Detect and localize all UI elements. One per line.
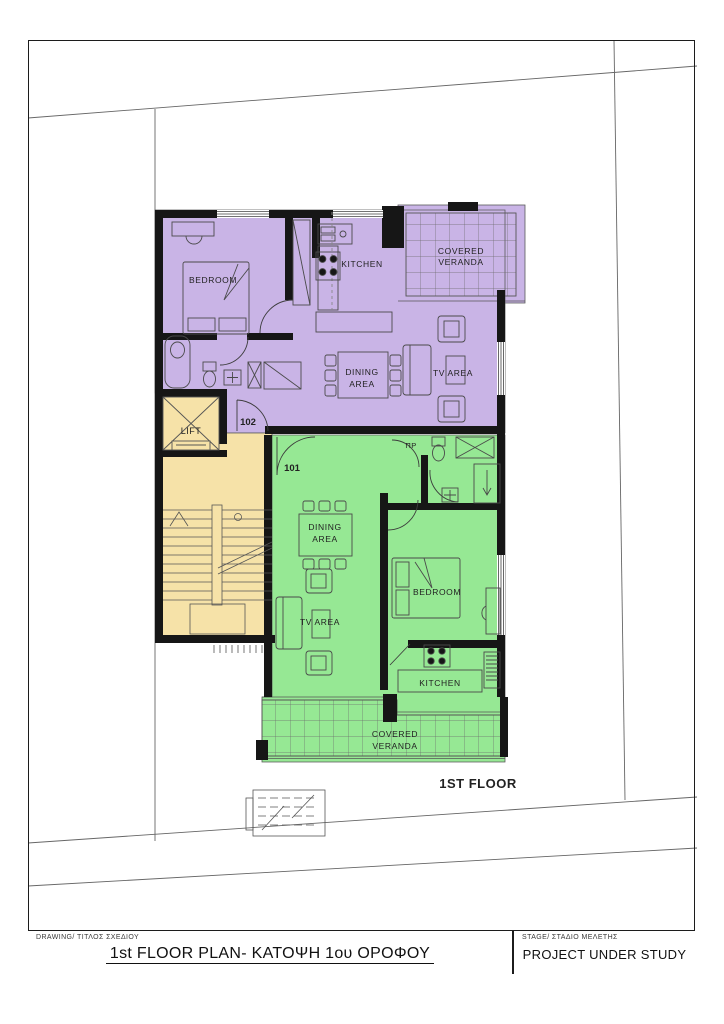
title-block: DRAWING/ ΤΙΤΛΟΣ ΣΧΕΔΙΟΥ 1st FLOOR PLAN- …	[28, 930, 695, 974]
drawing-title: 1st FLOOR PLAN- ΚΑΤΟΨΗ 1ου ΟΡΟΦΟΥ	[28, 945, 512, 963]
drawing-field-label: DRAWING/ ΤΙΤΛΟΣ ΣΧΕΔΙΟΥ	[36, 934, 139, 941]
drawing-sheet-border	[28, 40, 695, 974]
title-block-stage-cell: STAGE/ ΣΤΑΔΙΟ ΜΕΛΕΤΗΣ PROJECT UNDER STUD…	[512, 931, 695, 974]
title-block-drawing-cell: DRAWING/ ΤΙΤΛΟΣ ΣΧΕΔΙΟΥ 1st FLOOR PLAN- …	[28, 931, 512, 974]
stage-value: PROJECT UNDER STUDY	[514, 947, 695, 962]
stage-field-label: STAGE/ ΣΤΑΔΙΟ ΜΕΛΕΤΗΣ	[522, 934, 618, 941]
